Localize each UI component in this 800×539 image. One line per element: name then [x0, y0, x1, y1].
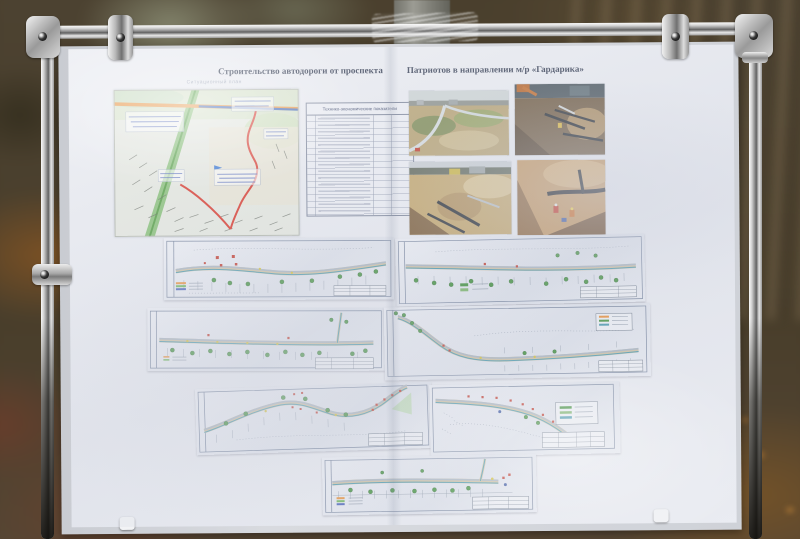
pole-clamp-left [32, 264, 72, 285]
table-grid [307, 115, 414, 216]
legend [163, 356, 186, 361]
road-plan-sheet-2 [395, 234, 645, 307]
paper-clip-right [654, 509, 669, 522]
photo-excavation-pipes [515, 84, 605, 156]
map-caption: Ситуационный план [187, 79, 242, 85]
road-plan-sheet-7 [322, 454, 537, 515]
indicators-table: Технико-экономические показатели [306, 102, 415, 217]
legend [460, 283, 488, 292]
paper-clip-left [120, 517, 135, 530]
road-plan-sheet-3 [147, 308, 385, 371]
photo-scene: Строительство автодороги от проспектаПат… [0, 0, 800, 539]
poster-paper: Строительство автодороги от проспектаПат… [68, 45, 736, 528]
road-plan-sheet-6 [429, 381, 620, 457]
legend [176, 282, 203, 290]
poster-title-part2: Патриотов в направлении м/р «Гардарика» [407, 64, 584, 75]
left-pole [41, 48, 54, 539]
photo-workers-trench [517, 160, 606, 236]
legend [596, 313, 632, 331]
construction-photos [407, 83, 606, 236]
road-plan-sheet-4 [384, 303, 651, 381]
photo-aerial-view [409, 90, 509, 156]
rail-clamp-left [108, 15, 133, 60]
legend [556, 402, 598, 425]
table-title: Технико-экономические показатели [307, 103, 413, 116]
rail-clamp-right [662, 14, 689, 59]
information-board: Строительство автодороги от проспектаПат… [58, 42, 741, 535]
right-pole-collar [742, 52, 768, 63]
photo-trench-sand [409, 161, 512, 235]
corner-elbow-left [26, 16, 60, 58]
poster-title-part1: Строительство автодороги от проспекта [218, 65, 383, 76]
legend [337, 497, 363, 505]
plastic-wrap [372, 12, 478, 43]
situational-map [114, 89, 300, 237]
road-plan-sheet-5 [195, 382, 433, 455]
right-pole [749, 48, 762, 539]
poster-title: Строительство автодороги от проспектаПат… [68, 63, 733, 78]
road-plan-sheet-1 [164, 237, 394, 300]
